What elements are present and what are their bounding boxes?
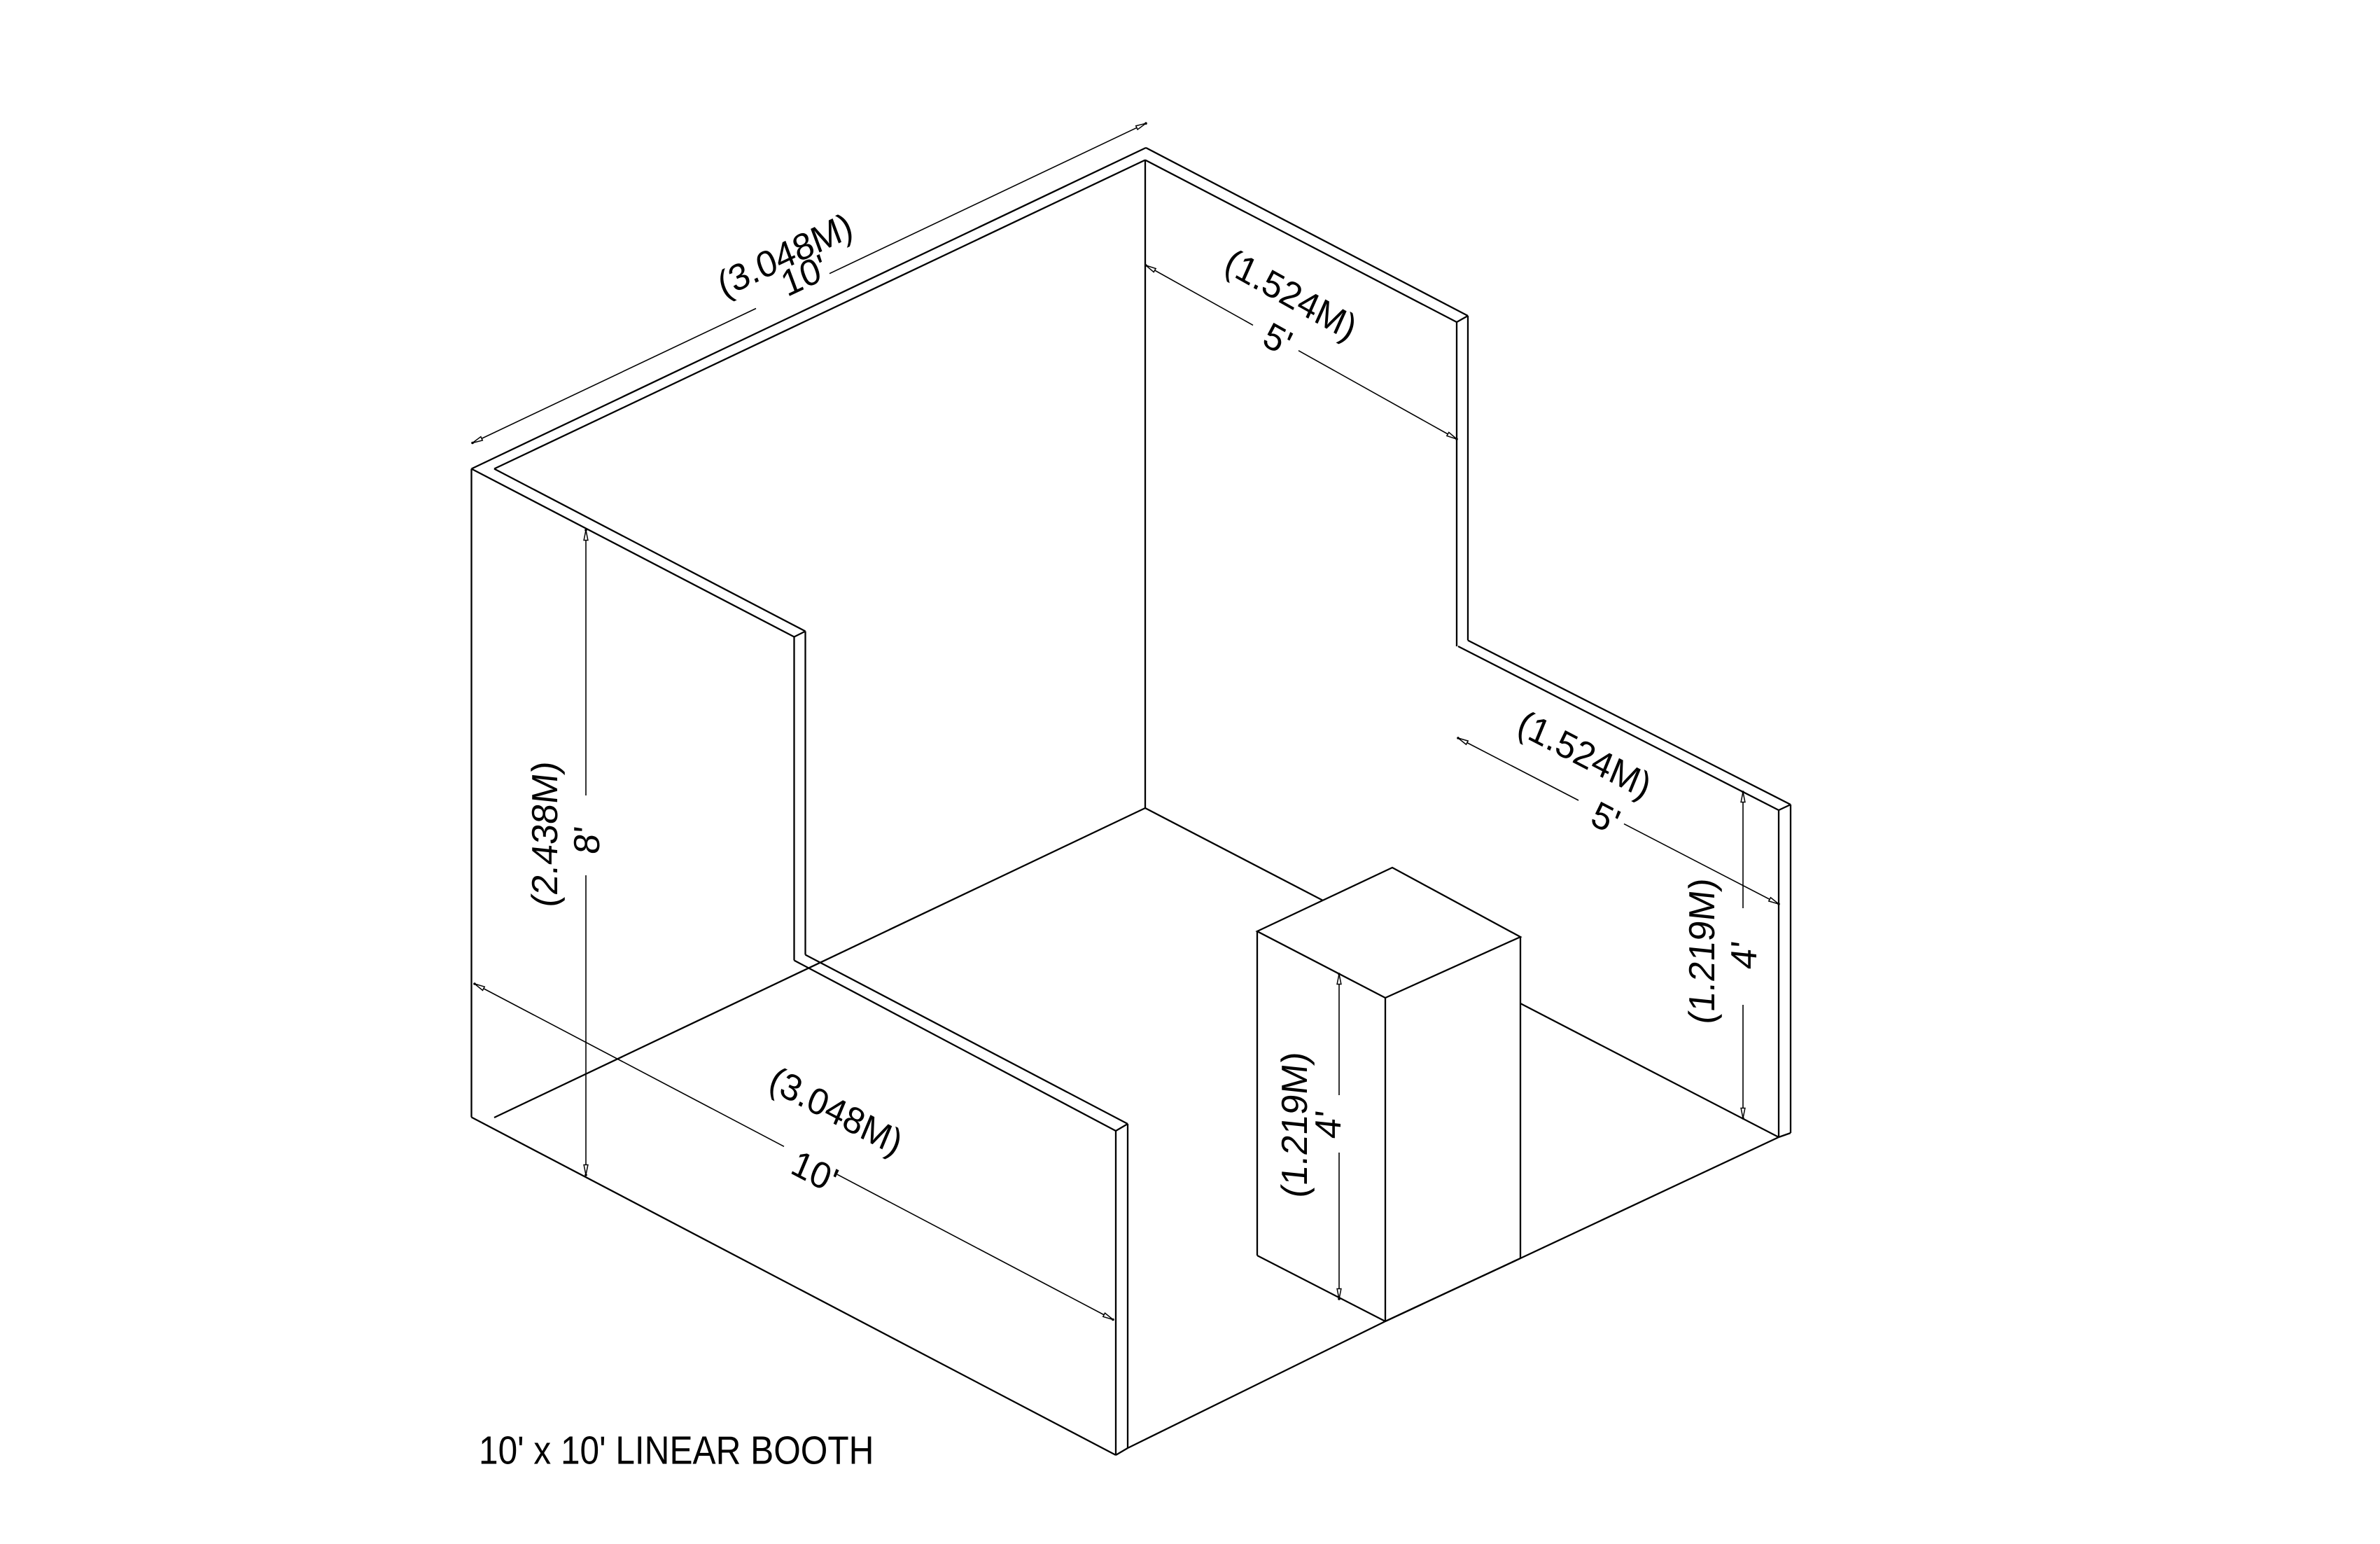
- svg-text:4': 4': [1308, 1109, 1349, 1141]
- svg-text:4': 4': [1724, 940, 1765, 971]
- svg-text:8': 8': [567, 825, 608, 856]
- svg-text:(2.438M): (2.438M): [525, 759, 566, 909]
- svg-text:10' x 10' LINEAR BOOTH: 10' x 10' LINEAR BOOTH: [479, 1428, 874, 1473]
- svg-text:(1.219M): (1.219M): [1682, 876, 1723, 1026]
